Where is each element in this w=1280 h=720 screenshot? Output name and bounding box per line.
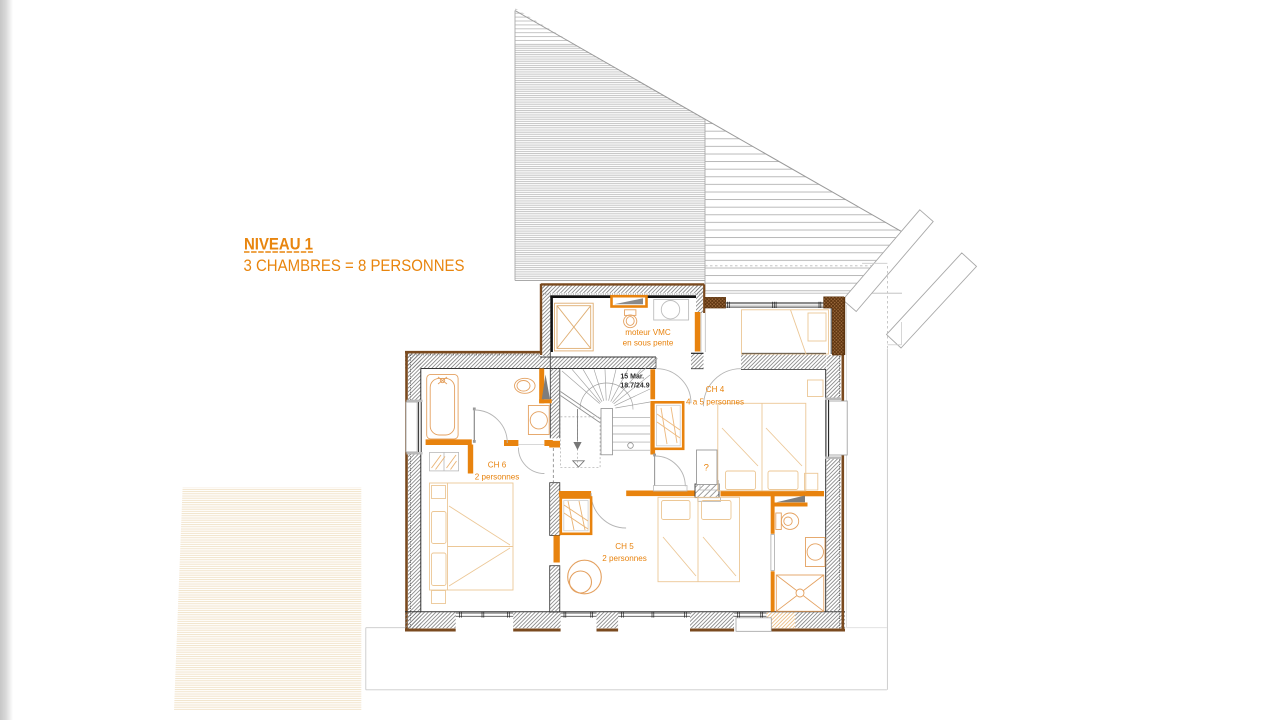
svg-text:18.7/24.9: 18.7/24.9: [620, 382, 649, 389]
svg-text:moteur VMC: moteur VMC: [625, 328, 671, 337]
svg-text:en sous pente: en sous pente: [623, 339, 674, 348]
svg-text:CH 5: CH 5: [615, 542, 634, 551]
svg-text:NIVEAU 1: NIVEAU 1: [244, 236, 313, 254]
svg-text:CH 4: CH 4: [706, 385, 725, 394]
svg-text:15 Mar.: 15 Mar.: [620, 373, 644, 380]
svg-text:3 CHAMBRES = 8 PERSONNES: 3 CHAMBRES = 8 PERSONNES: [244, 257, 465, 275]
svg-text:CH 6: CH 6: [488, 461, 507, 470]
svg-text:?: ?: [704, 463, 709, 474]
svg-text:2 personnes: 2 personnes: [475, 473, 520, 482]
svg-text:2 personnes: 2 personnes: [602, 554, 647, 563]
svg-text:4 a 5 personnes: 4 a 5 personnes: [686, 398, 744, 407]
